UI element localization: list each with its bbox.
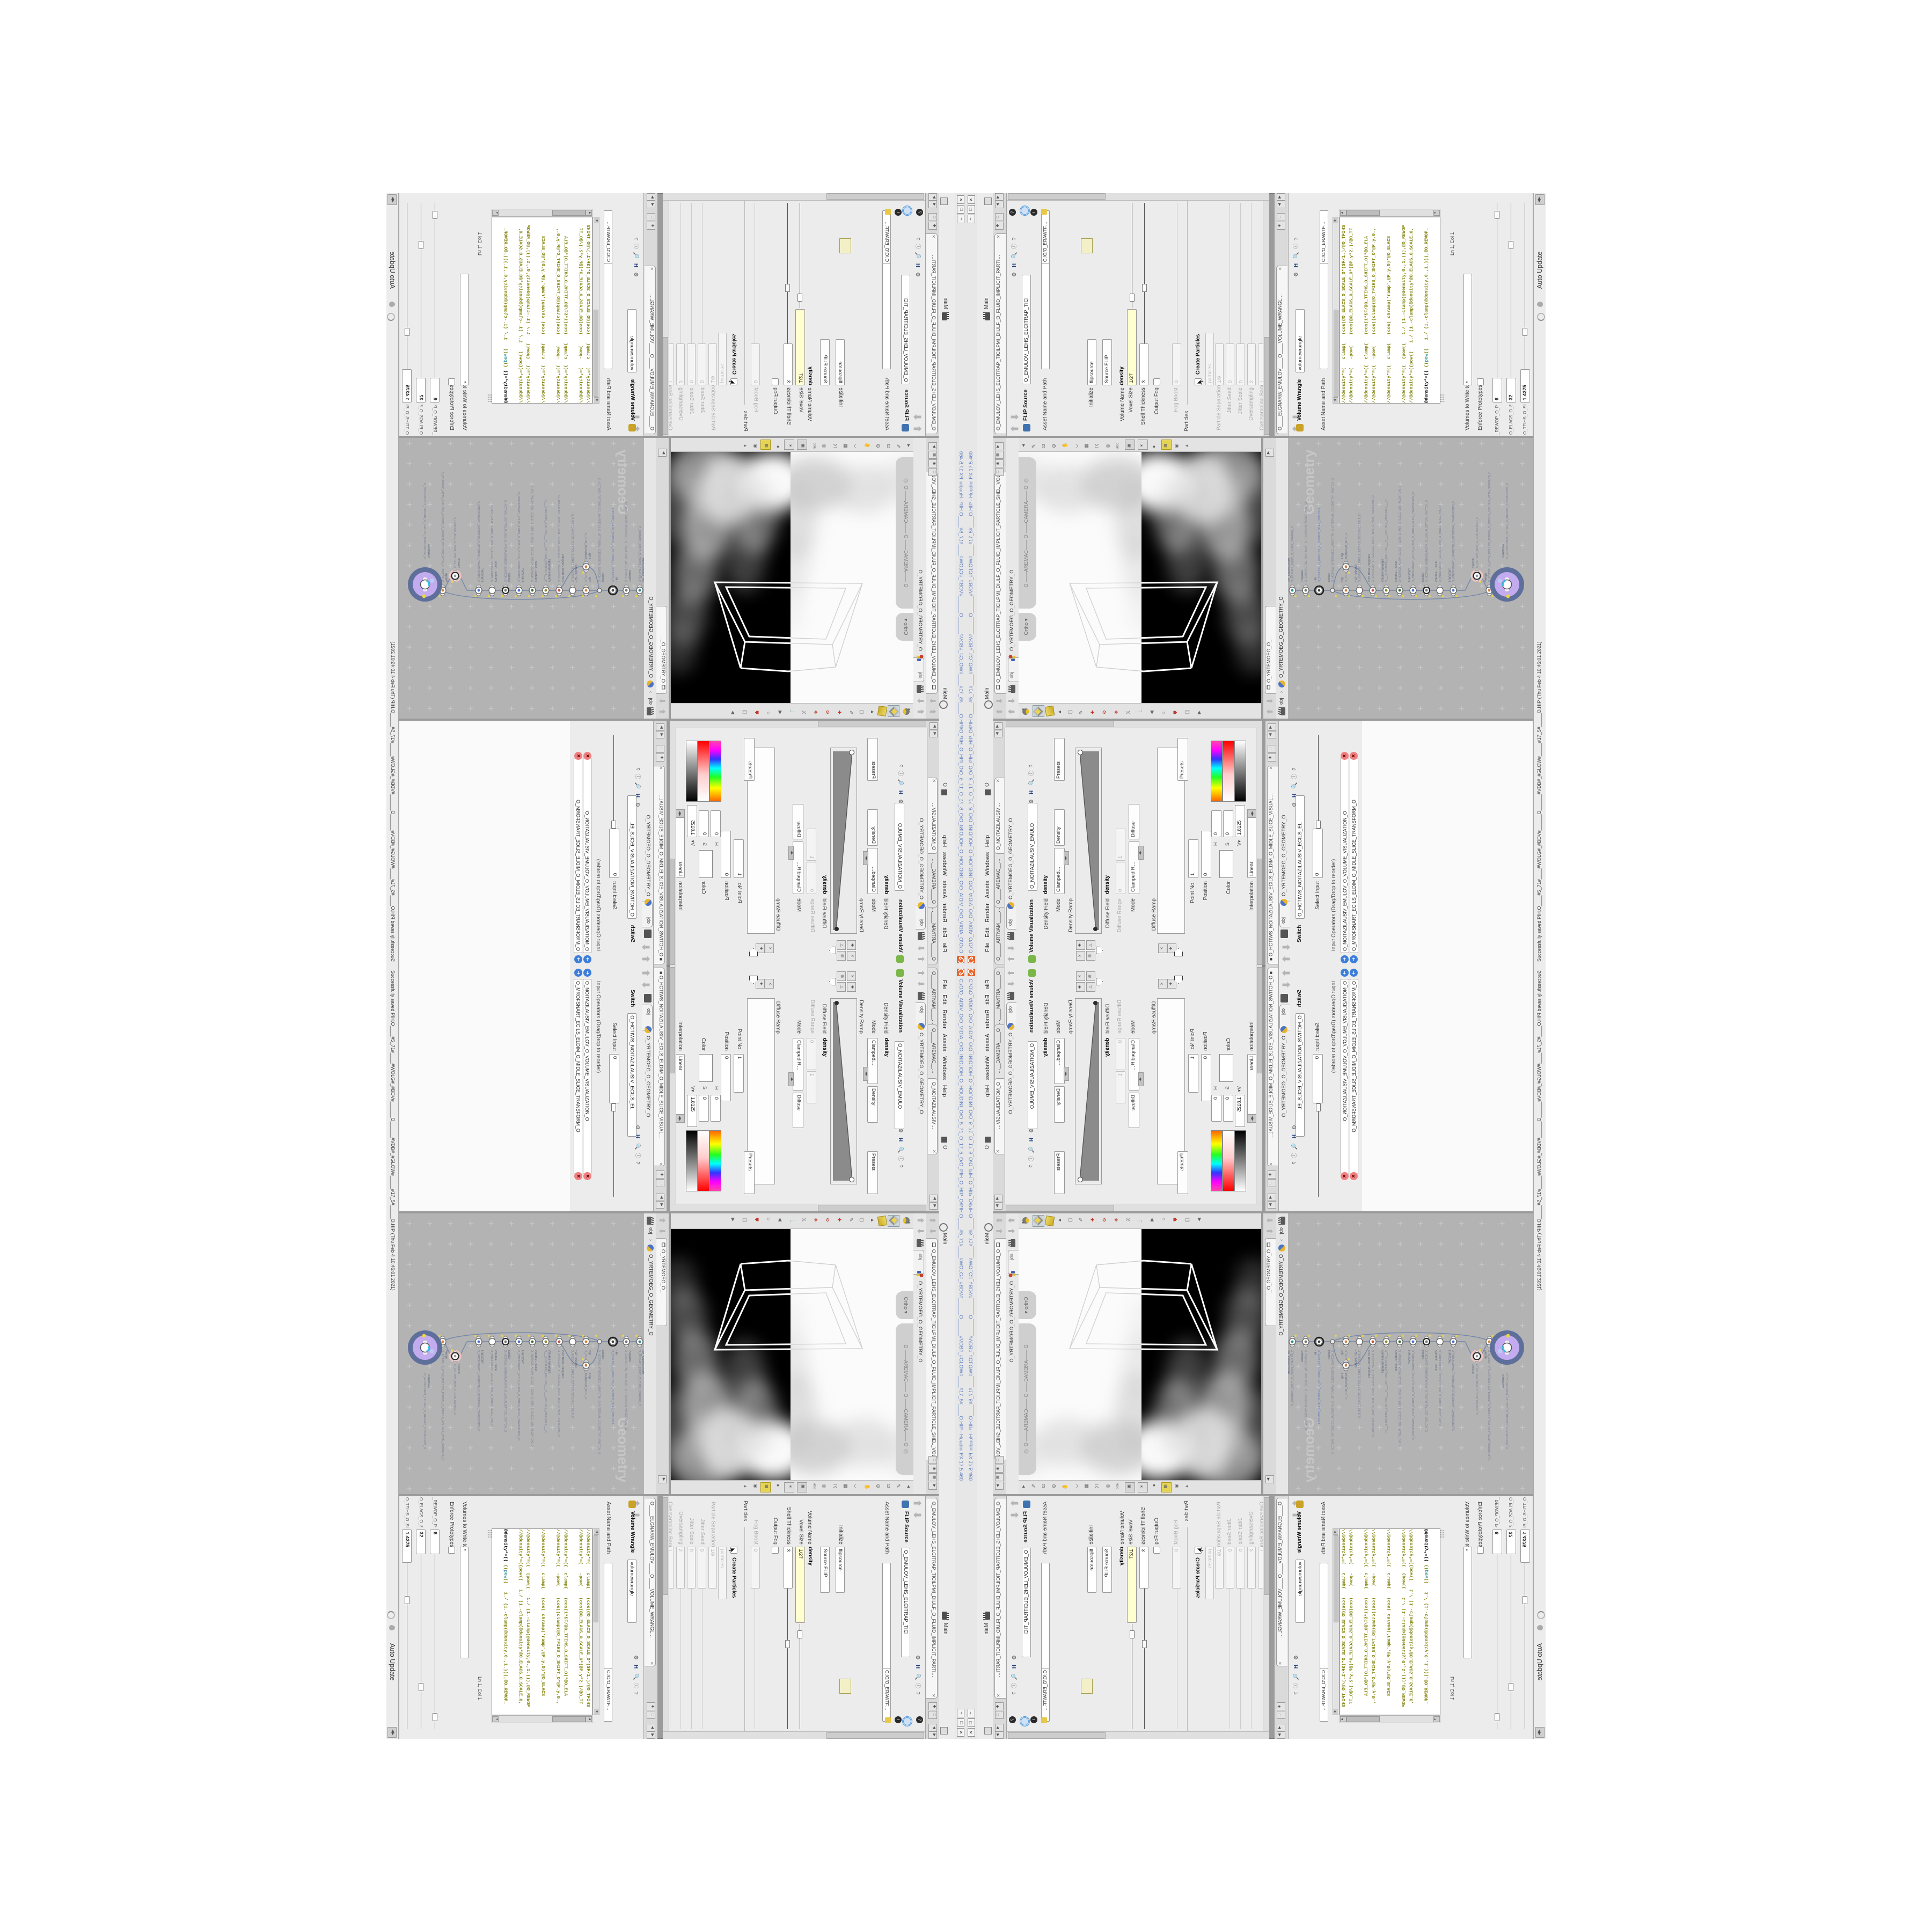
svg-text:Geometry: Geometry xyxy=(615,449,631,515)
svg-text:Geometry: Geometry xyxy=(1301,1417,1317,1483)
svg-text:Geometry: Geometry xyxy=(615,1417,631,1483)
svg-text:Geometry: Geometry xyxy=(1301,449,1317,515)
